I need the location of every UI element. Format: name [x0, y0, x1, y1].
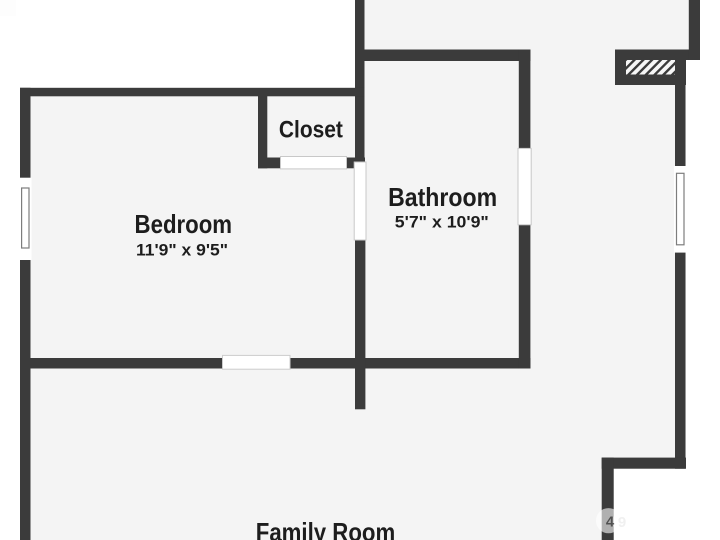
svg-text:Family Room: Family Room — [256, 517, 396, 540]
svg-text:11'9" x 9'5": 11'9" x 9'5" — [136, 240, 228, 259]
svg-text:5'7" x 10'9": 5'7" x 10'9" — [395, 213, 489, 232]
svg-text:Bedroom: Bedroom — [135, 209, 233, 239]
svg-text:Bathroom: Bathroom — [388, 182, 497, 212]
svg-text:Closet: Closet — [279, 117, 343, 144]
svg-text:4: 4 — [606, 514, 615, 531]
svg-text:9: 9 — [618, 514, 626, 531]
